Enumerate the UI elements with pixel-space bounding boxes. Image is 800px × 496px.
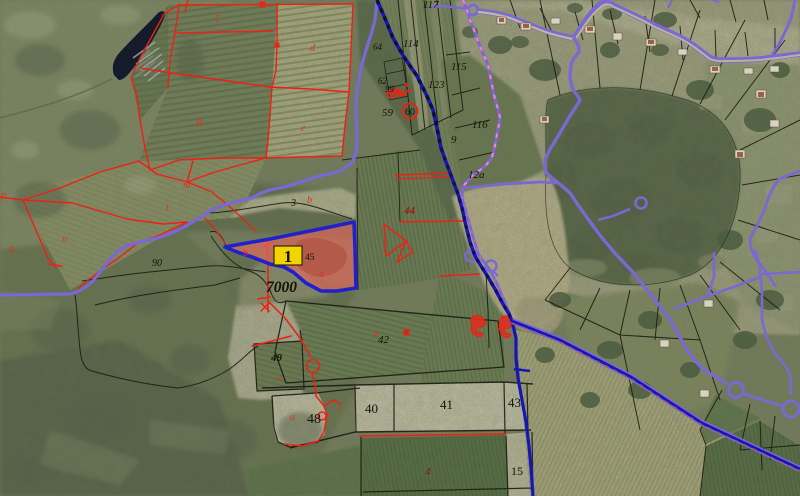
svg-text:41: 41 <box>440 397 453 412</box>
svg-text:9: 9 <box>451 134 457 146</box>
svg-text:3: 3 <box>290 198 296 209</box>
svg-text:a: a <box>374 328 379 339</box>
svg-text:90: 90 <box>152 258 162 269</box>
svg-text:c: c <box>338 404 343 415</box>
svg-text:n: n <box>62 234 67 245</box>
svg-text:q: q <box>9 243 14 254</box>
svg-text:48: 48 <box>307 412 321 427</box>
svg-text:7000: 7000 <box>266 279 297 296</box>
svg-text:49: 49 <box>270 352 283 364</box>
svg-text:B: B <box>196 118 202 129</box>
svg-text:1: 1 <box>284 247 293 266</box>
svg-text:t: t <box>166 203 169 214</box>
svg-text:60: 60 <box>405 107 415 118</box>
svg-text:4: 4 <box>425 466 431 478</box>
svg-text:p: p <box>0 190 6 201</box>
svg-text:42: 42 <box>378 334 390 346</box>
svg-text:b: b <box>243 248 248 259</box>
svg-text:e: e <box>301 123 306 134</box>
svg-text:e: e <box>278 373 283 384</box>
svg-text:b: b <box>307 195 312 206</box>
svg-text:40: 40 <box>365 401 378 416</box>
svg-text:m: m <box>183 180 190 191</box>
svg-text:115: 115 <box>451 61 467 73</box>
svg-text:a: a <box>319 269 324 280</box>
svg-text:44: 44 <box>403 205 416 217</box>
svg-text:114: 114 <box>403 38 419 50</box>
svg-text:116: 116 <box>472 119 488 131</box>
svg-text:a: a <box>290 412 295 423</box>
svg-text:12a: 12a <box>468 169 485 181</box>
svg-text:123: 123 <box>428 79 445 91</box>
svg-text:64: 64 <box>373 42 383 52</box>
svg-text:47: 47 <box>496 322 507 333</box>
svg-text:15: 15 <box>511 464 523 478</box>
svg-text:59: 59 <box>382 107 394 119</box>
svg-text:99: 99 <box>385 84 395 94</box>
svg-text:43: 43 <box>508 395 521 410</box>
svg-text:117: 117 <box>423 0 439 11</box>
svg-text:45: 45 <box>305 253 315 263</box>
